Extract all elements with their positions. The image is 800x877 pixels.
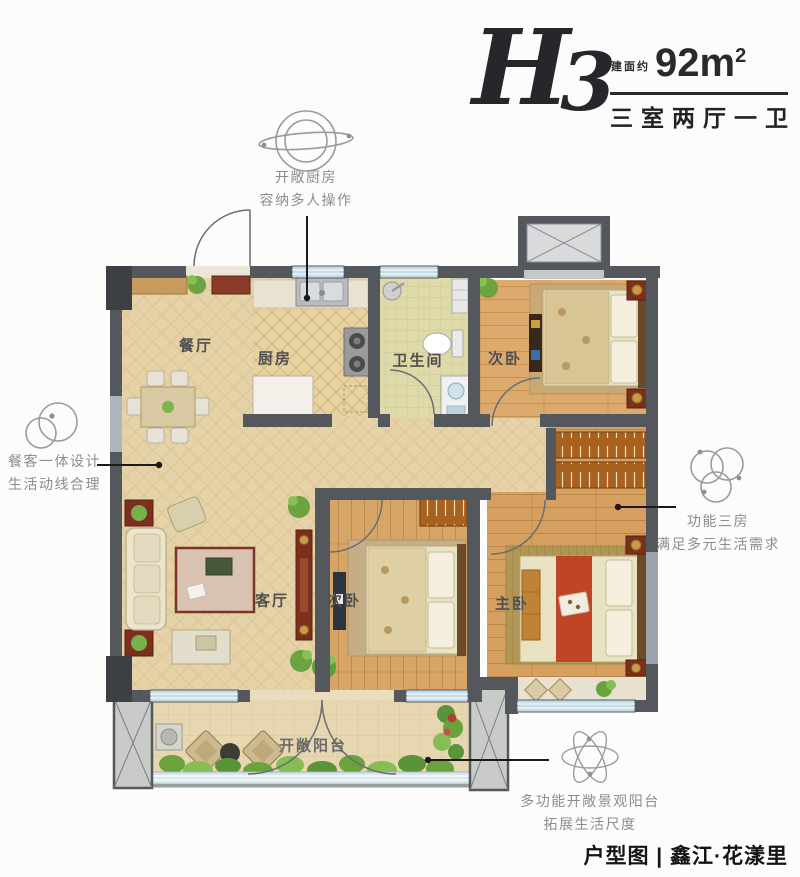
balcony-rail [152,772,470,788]
structural-column-left [114,698,152,788]
area-superscript: 2 [735,45,746,68]
plan-code: H 3 [472,16,616,122]
header-divider [610,92,788,95]
right-wall-bay [646,552,658,664]
shaft [518,216,610,279]
room-label-dining: 餐厅 [179,335,213,356]
room-label-bathroom: 卫生间 [392,350,443,371]
plan-code-number: 3 [560,42,616,122]
annotation-rooms-line2: 满足多元生活需求 [656,533,780,556]
structural-column-right [470,687,508,790]
page: H 3 建面约 92m 2 三室两厅一卫 开敞厨房 容纳多人操作 餐客一体设计 … [0,0,800,877]
annotation-kitchen: 开敞厨房 容纳多人操作 [260,166,353,212]
area-value: 92m [655,44,735,82]
footer-caption: 户型图 | 鑫江·花漾里 [583,840,788,870]
room-label-bedroom-top: 次卧 [488,348,522,369]
room-label-kitchen: 厨房 [258,348,292,369]
room-label-bedroom-bottom: 次卧 [327,590,361,611]
area-prefix: 建面约 [611,58,650,82]
layout-type: 三室两厅一卫 [610,99,795,133]
two-circles-icon [26,403,77,448]
plan-code-letter: H [472,16,570,120]
annotation-balcony: 多功能开敞景观阳台 拓展生活尺度 [520,790,660,836]
left-wall-window [110,396,122,452]
area-row: 建面约 92m 2 [611,44,746,82]
annotation-balcony-line2: 拓展生活尺度 [520,813,660,836]
annotation-balcony-line1: 多功能开敞景观阳台 [520,790,660,813]
room-label-master: 主卧 [495,593,529,614]
annotation-kitchen-line2: 容纳多人操作 [260,189,353,212]
annotation-dining-line1: 餐客一体设计 [8,450,101,473]
atom-ellipses-icon [562,727,618,787]
annotation-rooms-line1: 功能三房 [656,510,780,533]
annotation-dining-line2: 生活动线合理 [8,473,101,496]
room-label-balcony: 开敞阳台 [279,735,347,756]
annotation-dining: 餐客一体设计 生活动线合理 [8,450,101,496]
orbit-circles-icon [259,111,354,171]
annotation-rooms: 功能三房 满足多元生活需求 [656,510,780,556]
room-label-living: 客厅 [255,590,289,611]
three-circles-icon [691,448,743,502]
annotation-kitchen-line1: 开敞厨房 [260,166,353,189]
